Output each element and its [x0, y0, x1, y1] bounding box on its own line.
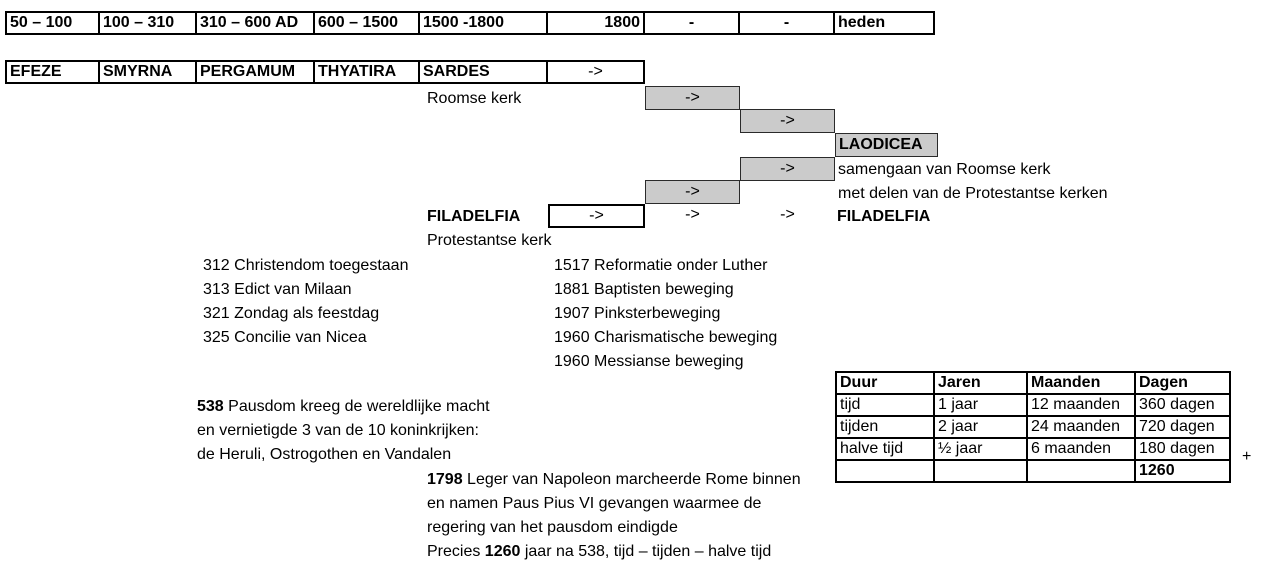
- duur-cell: 6 maanden: [1027, 438, 1135, 460]
- flow-arrow: ->: [740, 206, 835, 224]
- label-samengaan-1: samengaan van Roomse kerk: [838, 159, 1051, 181]
- period-cell: 1800: [547, 12, 644, 34]
- note-538-line2: en vernietigde 3 van de 10 koninkrijken:: [197, 419, 490, 443]
- duur-cell: tijd: [836, 394, 934, 416]
- church-cell-sardes: SARDES: [419, 61, 547, 83]
- flow-arrow-box: ->: [740, 109, 835, 133]
- event-item: 321 Zondag als feestdag: [203, 302, 408, 326]
- note-1798-line2: en namen Paus Pius VI gevangen waarmee d…: [427, 492, 801, 516]
- period-cell: heden: [834, 12, 934, 34]
- laodicea-box: LAODICEA: [835, 133, 938, 157]
- note-1798-line4-rest: jaar na 538, tijd – tijden – halve tijd: [520, 543, 771, 560]
- duur-table: Duur Jaren Maanden Dagen tijd 1 jaar 12 …: [835, 371, 1231, 483]
- event-item: 1960 Charismatische beweging: [554, 326, 777, 350]
- note-538-line1: 538 Pausdom kreeg de wereldlijke macht: [197, 395, 490, 419]
- duur-cell: 2 jaar: [934, 416, 1027, 438]
- period-cell: 50 – 100: [6, 12, 99, 34]
- duur-total-cell: 1260: [1135, 460, 1230, 482]
- flow-arrow-box: ->: [645, 180, 740, 204]
- duur-cell: halve tijd: [836, 438, 934, 460]
- church-table: EFEZE SMYRNA PERGAMUM THYATIRA SARDES ->: [5, 60, 645, 84]
- note-1798: 1798 Leger van Napoleon marcheerde Rome …: [427, 468, 801, 564]
- note-1798-line4: Precies 1260 jaar na 538, tijd – tijden …: [427, 540, 801, 564]
- event-item: 1907 Pinksterbeweging: [554, 302, 777, 326]
- period-cell: -: [739, 12, 834, 34]
- label-protestantse-kerk: Protestantse kerk: [427, 230, 552, 252]
- duur-empty-cell: [836, 460, 934, 482]
- duur-header: Dagen: [1135, 372, 1230, 394]
- note-538-line1-rest: Pausdom kreeg de wereldlijke macht: [224, 398, 490, 415]
- event-item: 1517 Reformatie onder Luther: [554, 254, 777, 278]
- duur-cell: 360 dagen: [1135, 394, 1230, 416]
- duur-header: Duur: [836, 372, 934, 394]
- duur-cell: 12 maanden: [1027, 394, 1135, 416]
- church-cell-pergamum: PERGAMUM: [196, 61, 314, 83]
- period-table: 50 – 100 100 – 310 310 – 600 AD 600 – 15…: [5, 11, 935, 35]
- flow-arrow: ->: [645, 206, 740, 224]
- label-samengaan-2: met delen van de Protestantse kerken: [838, 183, 1108, 205]
- note-1798-line1-rest: Leger van Napoleon marcheerde Rome binne…: [463, 471, 801, 488]
- duur-cell: 1 jaar: [934, 394, 1027, 416]
- events-310-list: 312 Christendom toegestaan 313 Edict van…: [203, 254, 408, 350]
- church-cell-smyrna: SMYRNA: [99, 61, 196, 83]
- church-arrow-cell: ->: [547, 61, 644, 83]
- event-item: 313 Edict van Milaan: [203, 278, 408, 302]
- note-1798-line1: 1798 Leger van Napoleon marcheerde Rome …: [427, 468, 801, 492]
- plus-sign: +: [1242, 446, 1251, 468]
- label-filadelfia-right: FILADELFIA: [837, 206, 930, 228]
- label-filadelfia-left: FILADELFIA: [427, 206, 520, 228]
- period-cell: 1500 -1800: [419, 12, 547, 34]
- flow-arrow-box: ->: [645, 86, 740, 110]
- period-cell: 600 – 1500: [314, 12, 419, 34]
- event-item: 312 Christendom toegestaan: [203, 254, 408, 278]
- note-538-line3: de Heruli, Ostrogothen en Vandalen: [197, 443, 490, 467]
- duur-cell: 180 dagen: [1135, 438, 1230, 460]
- duur-cell: 720 dagen: [1135, 416, 1230, 438]
- period-cell: 310 – 600 AD: [196, 12, 314, 34]
- event-item: 1881 Baptisten beweging: [554, 278, 777, 302]
- label-roomse-kerk: Roomse kerk: [427, 88, 521, 110]
- note-538: 538 Pausdom kreeg de wereldlijke macht e…: [197, 395, 490, 467]
- note-538-year: 538: [197, 398, 224, 415]
- duur-cell: ½ jaar: [934, 438, 1027, 460]
- note-1798-line4-prefix: Precies: [427, 543, 485, 560]
- duur-empty-cell: [1027, 460, 1135, 482]
- duur-header: Maanden: [1027, 372, 1135, 394]
- duur-cell: tijden: [836, 416, 934, 438]
- event-item: 1960 Messianse beweging: [554, 350, 777, 374]
- flow-arrow-box: ->: [740, 157, 835, 181]
- note-1798-line4-bold: 1260: [485, 543, 521, 560]
- events-1500-list: 1517 Reformatie onder Luther 1881 Baptis…: [554, 254, 777, 374]
- event-item: 325 Concilie van Nicea: [203, 326, 408, 350]
- timeline-sheet: 50 – 100 100 – 310 310 – 600 AD 600 – 15…: [0, 0, 1262, 573]
- church-cell-thyatira: THYATIRA: [314, 61, 419, 83]
- duur-cell: 24 maanden: [1027, 416, 1135, 438]
- duur-empty-cell: [934, 460, 1027, 482]
- church-cell-efeze: EFEZE: [6, 61, 99, 83]
- note-1798-line3: regering van het pausdom eindigde: [427, 516, 801, 540]
- period-cell: -: [644, 12, 739, 34]
- duur-header: Jaren: [934, 372, 1027, 394]
- filadelfia-arrow-box: ->: [548, 204, 645, 228]
- period-cell: 100 – 310: [99, 12, 196, 34]
- note-1798-year: 1798: [427, 471, 463, 488]
